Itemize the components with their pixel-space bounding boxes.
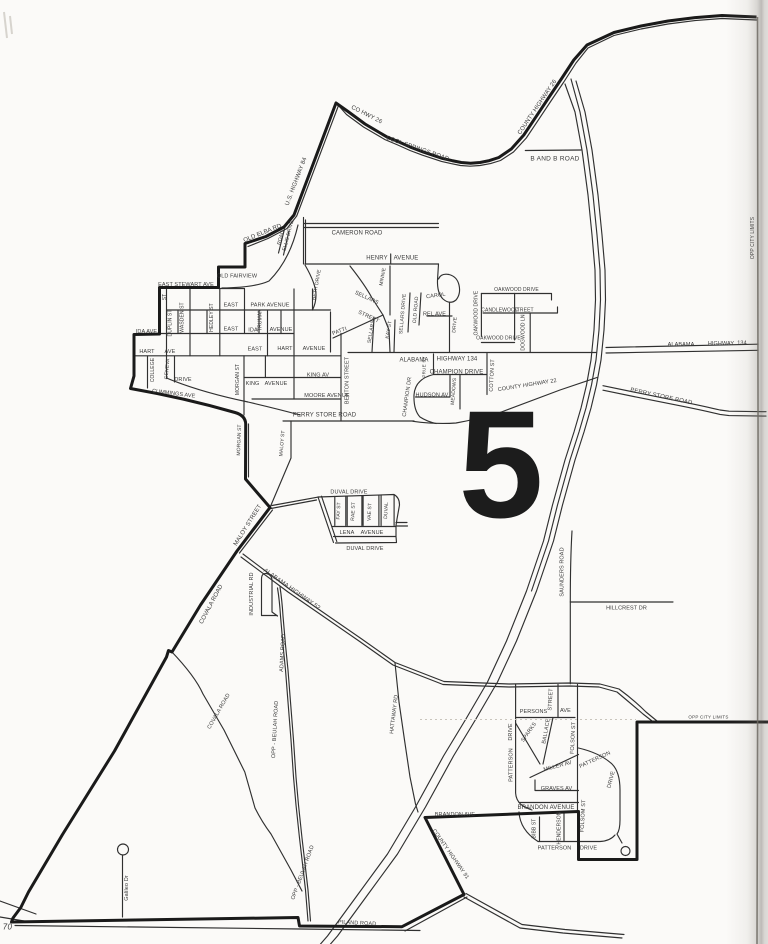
svg-text:OPP CITY LIMITS: OPP CITY LIMITS	[688, 715, 728, 720]
svg-text:AVE: AVE	[560, 708, 571, 714]
svg-text:B AND B ROAD: B AND B ROAD	[530, 156, 579, 163]
svg-text:IDA AVE: IDA AVE	[136, 329, 158, 335]
svg-text:KING: KING	[246, 381, 260, 387]
svg-text:AVENUE: AVENUE	[394, 256, 419, 262]
svg-text:HENRY: HENRY	[366, 256, 387, 262]
svg-text:BRANDON AVE: BRANDON AVE	[435, 812, 476, 818]
svg-text:OAKWOOD DRIVE: OAKWOOD DRIVE	[494, 287, 539, 293]
svg-text:DUVAL DRIVE: DUVAL DRIVE	[346, 546, 383, 552]
svg-text:VAE ST: VAE ST	[367, 503, 374, 521]
svg-text:DRIVE: DRIVE	[174, 377, 192, 383]
svg-text:HART: HART	[139, 349, 155, 355]
svg-text:DUVAL DRIVE: DUVAL DRIVE	[330, 490, 367, 496]
svg-text:KING AV: KING AV	[307, 373, 330, 379]
svg-text:DUPLIN ST: DUPLIN ST	[168, 309, 174, 336]
svg-text:MORGAN ST: MORGAN ST	[236, 424, 243, 455]
svg-text:ST: ST	[162, 294, 168, 301]
svg-text:HIGHWAY 134: HIGHWAY 134	[437, 357, 478, 363]
svg-text:AVENUE: AVENUE	[265, 381, 288, 387]
svg-text:FAY ST: FAY ST	[336, 502, 343, 520]
svg-text:5: 5	[458, 379, 543, 550]
svg-text:PARK AVENUE: PARK AVENUE	[250, 303, 289, 309]
svg-text:DUVAL: DUVAL	[383, 502, 390, 519]
svg-text:GRAVES AV: GRAVES AV	[541, 786, 573, 792]
svg-text:WASDEN ST: WASDEN ST	[180, 302, 186, 332]
svg-text:HART: HART	[277, 346, 293, 352]
svg-text:BRANDON AVENUE: BRANDON AVENUE	[518, 805, 575, 811]
svg-text:STREET: STREET	[513, 308, 533, 314]
svg-text:HENDERSON: HENDERSON	[557, 811, 563, 844]
svg-text:TRUMAN: TRUMAN	[258, 309, 264, 331]
svg-text:IDA: IDA	[248, 328, 258, 334]
svg-text:CHAMPION DRIVE: CHAMPION DRIVE	[430, 370, 484, 376]
svg-text:BENTON STREET: BENTON STREET	[345, 356, 351, 404]
svg-text:AVENUE: AVENUE	[303, 346, 326, 352]
svg-text:EAST: EAST	[224, 303, 239, 309]
svg-text:BIBB ST: BIBB ST	[532, 819, 538, 839]
svg-text:PATTERSON: PATTERSON	[538, 846, 572, 852]
svg-text:DRIVE: DRIVE	[508, 723, 514, 741]
svg-text:PERRY STORE ROAD: PERRY STORE ROAD	[293, 413, 357, 419]
svg-text:70: 70	[3, 923, 13, 932]
svg-text:PATTERSON: PATTERSON	[509, 748, 515, 782]
svg-text:HILLCREST DR: HILLCREST DR	[606, 606, 647, 612]
svg-text:DRIVE: DRIVE	[580, 846, 598, 852]
svg-text:Galileo Dr: Galileo Dr	[124, 875, 130, 901]
svg-text:COLLEGE: COLLEGE	[150, 357, 156, 382]
svg-text:PRUE ST: PRUE ST	[422, 356, 427, 377]
svg-text:AVENUE: AVENUE	[361, 530, 384, 536]
svg-text:OAKWOOD DRIVE: OAKWOOD DRIVE	[474, 290, 480, 335]
svg-text:PERSONS: PERSONS	[520, 709, 548, 715]
svg-text:AVE: AVE	[165, 349, 176, 355]
svg-text:REL AVE: REL AVE	[423, 312, 446, 318]
svg-text:DOGWOOD LN: DOGWOOD LN	[521, 314, 527, 351]
svg-text:OAKWOOD DRIVE: OAKWOOD DRIVE	[476, 336, 521, 342]
svg-text:MORGAN ST: MORGAN ST	[235, 364, 241, 395]
svg-text:AVENUE: AVENUE	[270, 327, 293, 333]
svg-text:STREET: STREET	[547, 688, 554, 711]
svg-text:SAUNDERS ROAD: SAUNDERS ROAD	[560, 547, 566, 596]
svg-text:CAMERON ROAD: CAMERON ROAD	[332, 231, 383, 237]
svg-text:EAST: EAST	[248, 347, 263, 353]
svg-text:HEDLEY ST: HEDLEY ST	[209, 303, 215, 332]
svg-text:EAST STEWART AVE: EAST STEWART AVE	[158, 282, 214, 288]
svg-text:INDUSTRIAL RD: INDUSTRIAL RD	[249, 572, 255, 615]
svg-text:HUDSON AV: HUDSON AV	[416, 393, 449, 399]
svg-text:OLD FAIRVIEW: OLD FAIRVIEW	[217, 274, 258, 280]
svg-text:RAE ST: RAE ST	[350, 502, 357, 521]
svg-text:MOORE AVENUE: MOORE AVENUE	[304, 393, 350, 399]
svg-text:ALABAMA: ALABAMA	[668, 342, 695, 348]
svg-text:LENA: LENA	[340, 530, 355, 536]
svg-text:EAST: EAST	[224, 327, 239, 333]
